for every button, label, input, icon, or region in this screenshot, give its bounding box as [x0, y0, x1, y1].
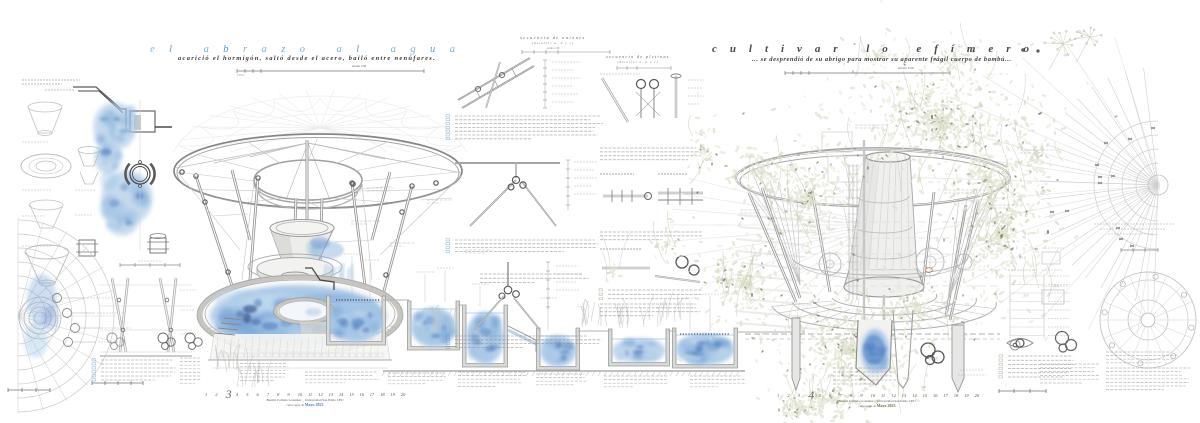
svg-text:4: 4: [808, 388, 814, 402]
svg-text:14: 14: [339, 392, 344, 397]
svg-text:3: 3: [225, 387, 232, 401]
svg-text:escala 1/50: escala 1/50: [352, 64, 367, 68]
svg-text:acarició el hormigón, saltó de: acarició el hormigón, saltó desde el ace…: [178, 55, 436, 62]
svg-text:20: 20: [975, 393, 980, 398]
svg-text:el abrazo al agua: el abrazo al agua: [150, 44, 465, 55]
svg-text:cultivar lo efímero: cultivar lo efímero: [712, 43, 1040, 55]
svg-text:19: 19: [390, 392, 395, 397]
svg-text:13: 13: [329, 392, 334, 397]
svg-text:1: 1: [205, 392, 207, 397]
svg-text:16: 16: [933, 393, 938, 398]
svg-text:14: 14: [912, 393, 917, 398]
svg-text:... se desprendió de su abrigo: ... se desprendió de su abrigo para most…: [752, 56, 1012, 63]
svg-text:15: 15: [349, 392, 354, 397]
svg-text:escala 1/50: escala 1/50: [898, 66, 914, 70]
svg-text:20: 20: [401, 392, 406, 397]
svg-text:escala 1/20: escala 1/20: [547, 47, 560, 50]
svg-text:17: 17: [943, 393, 948, 398]
svg-text:10: 10: [298, 392, 303, 397]
svg-text:12: 12: [318, 392, 323, 397]
svg-text:10: 10: [871, 393, 876, 398]
svg-text:19: 19: [964, 393, 969, 398]
svg-text:18: 18: [954, 393, 959, 398]
svg-text:curso agua de Mayo 2023: curso agua de Mayo 2023: [858, 403, 895, 408]
svg-text:11: 11: [881, 393, 885, 398]
svg-text:curso agua de Mayo 2023: curso agua de Mayo 2023: [286, 402, 323, 407]
svg-text:1: 1: [777, 393, 779, 398]
svg-text:16: 16: [360, 392, 365, 397]
svg-text:18: 18: [380, 392, 385, 397]
svg-text:12: 12: [891, 393, 896, 398]
svg-text:11: 11: [308, 392, 312, 397]
svg-text:15: 15: [923, 393, 928, 398]
svg-text:17: 17: [370, 392, 375, 397]
svg-text:13: 13: [902, 393, 907, 398]
svg-text:secuencia de uniones: secuencia de uniones: [520, 35, 586, 40]
svg-text:secuencia de pletinas: secuencia de pletinas: [606, 54, 670, 59]
svg-text:0 0.5 1: 0 0.5 1: [237, 74, 245, 77]
